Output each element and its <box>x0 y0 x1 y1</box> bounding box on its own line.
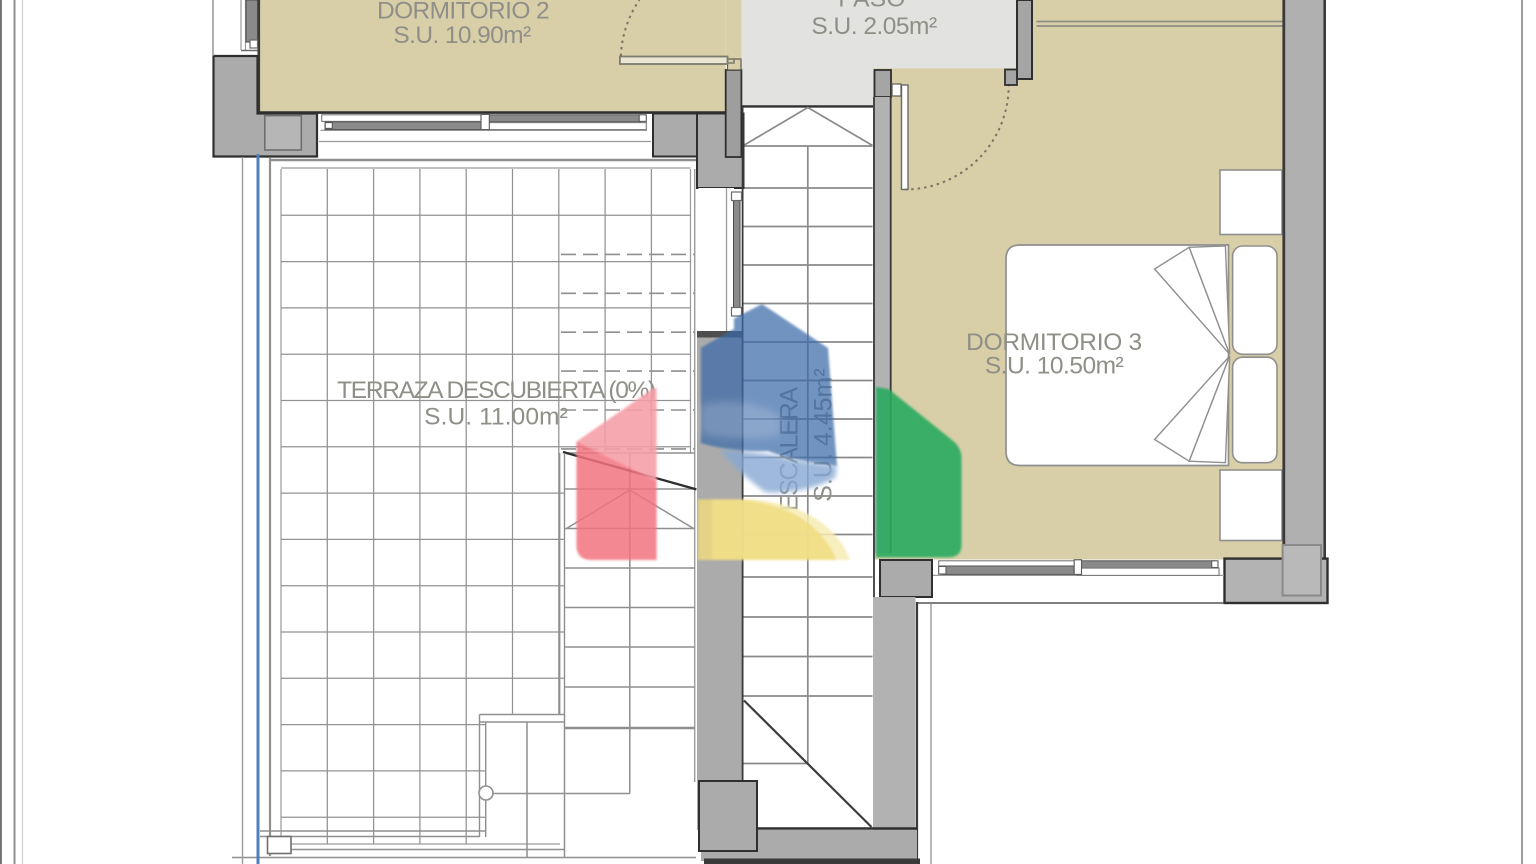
svg-text:DORMITORIO 2: DORMITORIO 2 <box>377 0 549 25</box>
svg-text:S.U. 2.05m²: S.U. 2.05m² <box>811 13 937 40</box>
svg-text:S.U. 10.90m²: S.U. 10.90m² <box>393 22 531 49</box>
svg-text:TERRAZA DESCUBIERTA (0%): TERRAZA DESCUBIERTA (0%) <box>337 377 655 404</box>
svg-text:S.U. 11.00m²: S.U. 11.00m² <box>424 404 568 431</box>
svg-text:S.U. 10.50m²: S.U. 10.50m² <box>985 353 1124 380</box>
svg-text:PASO: PASO <box>838 0 905 13</box>
